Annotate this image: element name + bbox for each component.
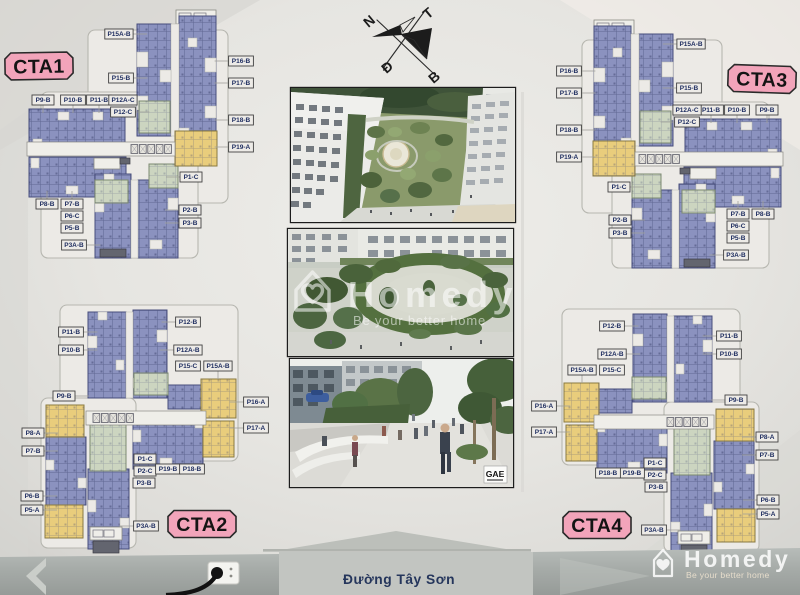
svg-text:P17-A: P17-A: [535, 429, 554, 436]
svg-text:P3A-B: P3A-B: [64, 242, 84, 249]
svg-text:P5-B: P5-B: [65, 225, 80, 232]
svg-text:P12A-B: P12A-B: [600, 351, 623, 358]
svg-text:GAE: GAE: [486, 469, 505, 479]
svg-text:P6-B: P6-B: [25, 493, 40, 500]
svg-text:Be your better home: Be your better home: [353, 313, 486, 328]
svg-text:P18-B: P18-B: [599, 470, 618, 477]
svg-text:P8-A: P8-A: [760, 434, 775, 441]
svg-text:P11-B: P11-B: [62, 329, 80, 336]
svg-text:P15A-B: P15A-B: [570, 367, 593, 374]
svg-text:Homedy: Homedy: [684, 546, 790, 572]
svg-text:P11-B: P11-B: [702, 107, 720, 114]
svg-text:P3A-B: P3A-B: [136, 523, 156, 530]
svg-text:Be your better home: Be your better home: [686, 570, 770, 580]
svg-text:P3-B: P3-B: [649, 484, 664, 491]
svg-text:P7-B: P7-B: [731, 211, 746, 218]
svg-text:P15A-B: P15A-B: [206, 363, 229, 370]
svg-text:P9-B: P9-B: [57, 393, 72, 400]
svg-text:P18-B: P18-B: [560, 127, 579, 134]
svg-text:CTA2: CTA2: [176, 514, 227, 536]
svg-text:P15-B: P15-B: [680, 85, 699, 92]
svg-text:P10-B: P10-B: [728, 107, 747, 114]
svg-text:P3-B: P3-B: [613, 230, 628, 237]
svg-text:P8-A: P8-A: [26, 430, 41, 437]
svg-text:P6-C: P6-C: [65, 213, 80, 220]
svg-text:P17-B: P17-B: [232, 80, 251, 87]
svg-text:P12A-C: P12A-C: [675, 107, 698, 114]
svg-text:P1-C: P1-C: [184, 174, 199, 181]
svg-text:P3A-B: P3A-B: [644, 527, 664, 534]
svg-text:P15-C: P15-C: [603, 367, 622, 374]
svg-text:P2-C: P2-C: [138, 468, 153, 475]
svg-text:P19-B: P19-B: [159, 466, 178, 473]
svg-text:P10-B: P10-B: [64, 97, 83, 104]
svg-text:P1-C: P1-C: [648, 460, 663, 467]
svg-text:P6-B: P6-B: [761, 497, 776, 504]
svg-text:P5-A: P5-A: [25, 507, 40, 514]
svg-text:P2-B: P2-B: [183, 207, 198, 214]
svg-text:CTA1: CTA1: [13, 56, 65, 79]
svg-text:P7-B: P7-B: [760, 452, 775, 459]
svg-text:P17-B: P17-B: [560, 90, 579, 97]
svg-text:P18-B: P18-B: [183, 466, 202, 473]
svg-text:P12A-B: P12A-B: [176, 347, 199, 354]
svg-text:P1-C: P1-C: [138, 456, 153, 463]
svg-text:P9-B: P9-B: [36, 97, 51, 104]
svg-text:Homedy: Homedy: [348, 274, 517, 315]
svg-text:Đường Tây Sơn: Đường Tây Sơn: [343, 572, 455, 587]
svg-text:P15-C: P15-C: [179, 363, 198, 370]
svg-text:P7-B: P7-B: [26, 448, 41, 455]
svg-text:P15A-B: P15A-B: [107, 31, 130, 38]
svg-text:P19-A: P19-A: [232, 144, 251, 151]
svg-text:P11-B: P11-B: [720, 333, 738, 340]
svg-text:P1-C: P1-C: [612, 184, 627, 191]
svg-text:P2-B: P2-B: [613, 217, 628, 224]
svg-text:P9-B: P9-B: [729, 397, 744, 404]
svg-text:P12-B: P12-B: [603, 323, 622, 330]
svg-text:P16-A: P16-A: [535, 403, 554, 410]
svg-text:P17-A: P17-A: [247, 425, 266, 432]
svg-text:P12-C: P12-C: [114, 109, 133, 116]
svg-text:P10-B: P10-B: [720, 351, 739, 358]
svg-text:P16-B: P16-B: [560, 68, 579, 75]
svg-text:P5-B: P5-B: [731, 235, 746, 242]
svg-text:P10-B: P10-B: [62, 347, 81, 354]
svg-text:CTA3: CTA3: [736, 68, 788, 92]
svg-text:P12-C: P12-C: [678, 119, 697, 126]
svg-text:P12A-C: P12A-C: [111, 97, 134, 104]
svg-text:CTA4: CTA4: [571, 515, 622, 537]
svg-text:P5-A: P5-A: [761, 511, 776, 518]
svg-text:P16-A: P16-A: [247, 399, 266, 406]
svg-text:P9-B: P9-B: [760, 107, 775, 114]
svg-text:P15-B: P15-B: [112, 75, 131, 82]
svg-text:P19-A: P19-A: [560, 154, 579, 161]
svg-text:P11-B: P11-B: [90, 97, 108, 104]
svg-text:P3A-B: P3A-B: [726, 252, 746, 259]
svg-text:P12-B: P12-B: [179, 319, 198, 326]
svg-text:P2-C: P2-C: [648, 472, 663, 479]
svg-text:P3-B: P3-B: [183, 220, 198, 227]
svg-text:P8-B: P8-B: [756, 211, 771, 218]
svg-text:P19-B: P19-B: [623, 470, 642, 477]
svg-text:P6-C: P6-C: [731, 223, 746, 230]
svg-text:P18-B: P18-B: [232, 117, 251, 124]
svg-text:P3-B: P3-B: [137, 480, 152, 487]
svg-text:P7-B: P7-B: [65, 201, 80, 208]
svg-text:P8-B: P8-B: [40, 201, 55, 208]
svg-text:P15A-B: P15A-B: [679, 41, 702, 48]
svg-text:P16-B: P16-B: [232, 58, 251, 65]
